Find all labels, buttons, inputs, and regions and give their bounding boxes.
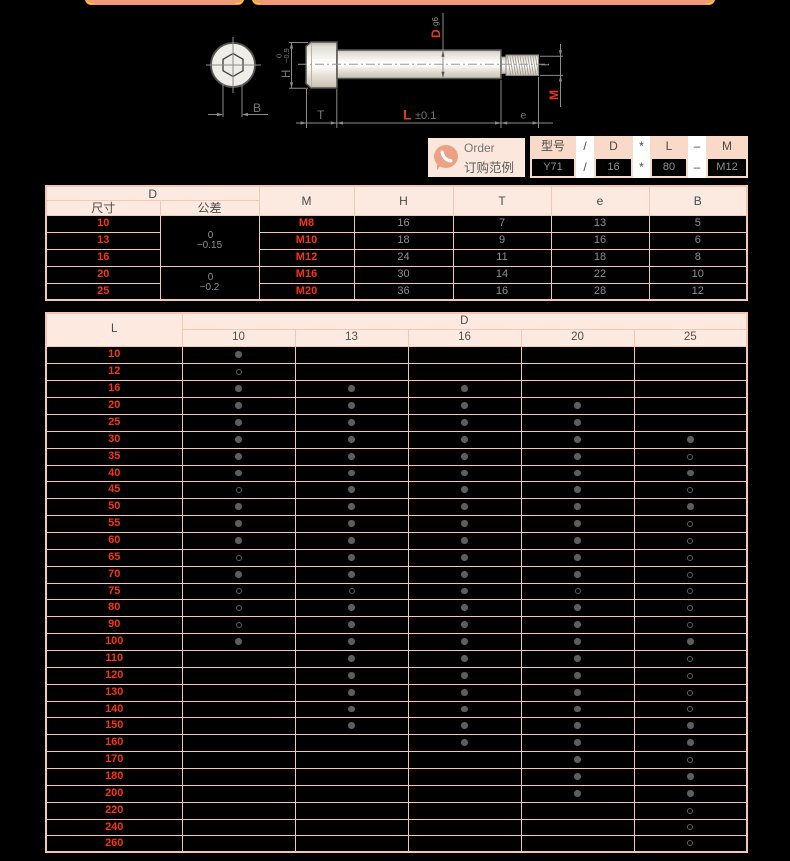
svg-text:±0.1: ±0.1 — [415, 110, 436, 122]
svg-text:H: H — [281, 70, 293, 78]
svg-text:T: T — [317, 108, 325, 122]
svg-text:L: L — [403, 107, 412, 123]
svg-text:D: D — [429, 29, 443, 38]
svg-text:0: 0 — [275, 54, 284, 58]
svg-text:B: B — [253, 101, 261, 115]
svg-text:e: e — [521, 110, 527, 122]
svg-text:g6: g6 — [431, 17, 440, 26]
svg-text:M: M — [547, 90, 561, 100]
